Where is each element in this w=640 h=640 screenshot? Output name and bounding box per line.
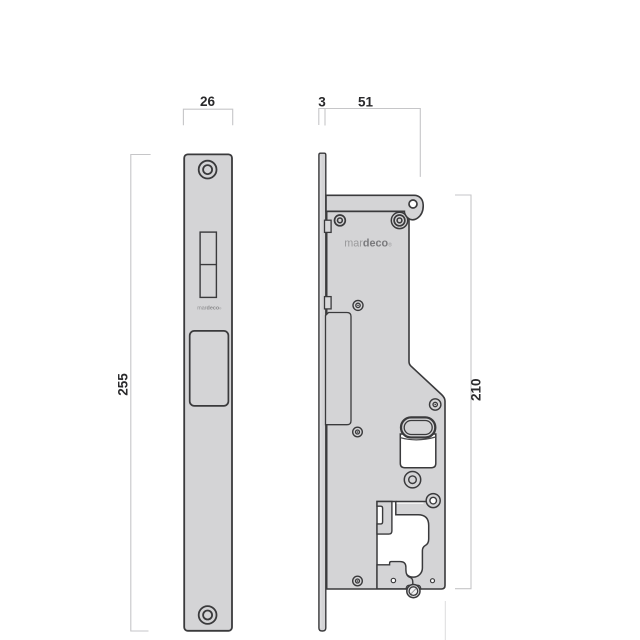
svg-text:3: 3 — [318, 95, 326, 110]
svg-text:51: 51 — [358, 95, 374, 110]
svg-text:210: 210 — [468, 378, 483, 401]
svg-text:mardeco®: mardeco® — [344, 238, 392, 250]
svg-text:26: 26 — [200, 94, 216, 109]
svg-text:mardeco®: mardeco® — [197, 306, 222, 312]
svg-text:255: 255 — [115, 373, 130, 396]
